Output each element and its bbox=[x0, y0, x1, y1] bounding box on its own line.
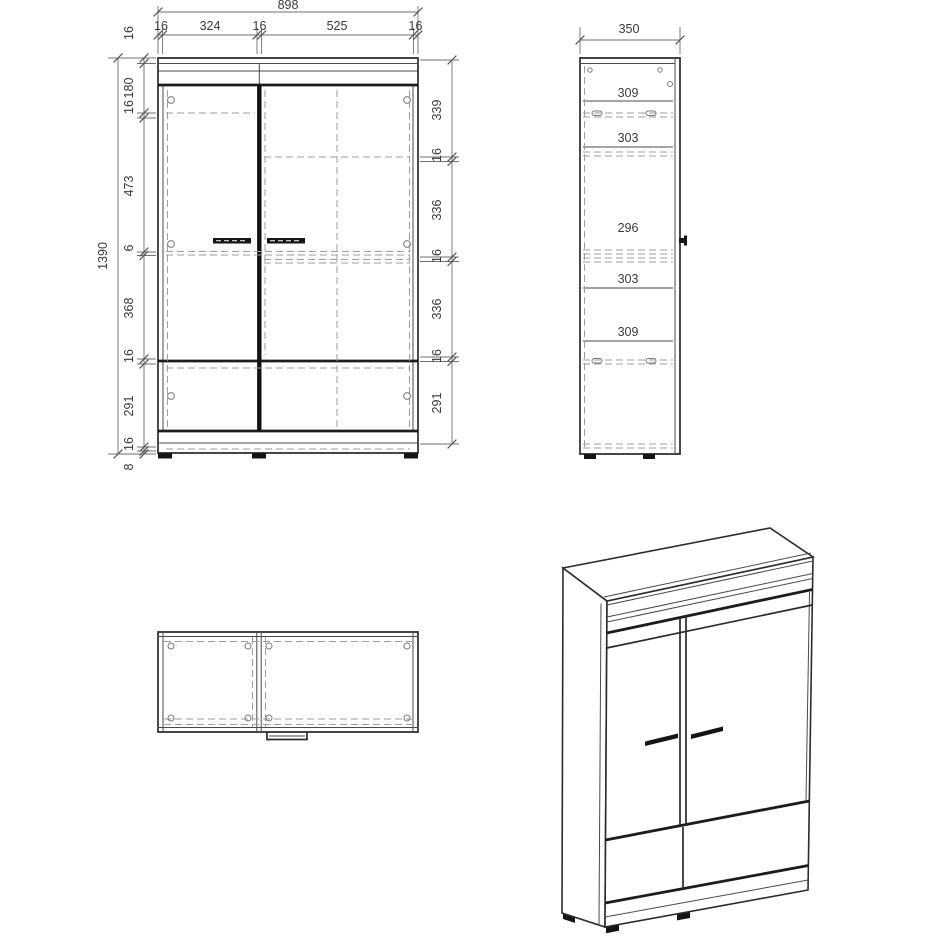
dim-pitch-4: 309 bbox=[618, 325, 639, 339]
technical-drawing: 898 16 324 16 525 16 1390 16 180 16 473 … bbox=[0, 0, 940, 940]
perspective-view bbox=[562, 528, 813, 933]
left-door-handle bbox=[213, 238, 251, 244]
dim-left-seg-7: 291 bbox=[122, 396, 136, 417]
dimension-ticks bbox=[114, 8, 457, 459]
dim-left-seg-3: 473 bbox=[122, 176, 136, 197]
front-fastener-marks bbox=[168, 97, 411, 400]
top-structure-lines bbox=[158, 632, 418, 732]
top-cabinet-outline bbox=[158, 632, 418, 732]
front-hidden-lines bbox=[166, 90, 410, 449]
dim-left-seg-0: 16 bbox=[122, 26, 136, 40]
side-hidden-lines bbox=[583, 66, 673, 448]
dim-left-seg-9: 8 bbox=[122, 463, 136, 470]
top-view bbox=[158, 632, 418, 740]
dim-width-seg-3: 525 bbox=[327, 19, 348, 33]
dim-total-depth: 350 bbox=[619, 22, 640, 36]
dim-left-seg-1: 180 bbox=[122, 78, 136, 99]
dim-left-seg-8: 16 bbox=[122, 437, 136, 451]
dim-width-seg-2: 16 bbox=[253, 19, 267, 33]
dim-left-seg-5: 368 bbox=[122, 298, 136, 319]
dim-pitch-3: 303 bbox=[618, 272, 639, 286]
dim-right-seg-2: 336 bbox=[430, 200, 444, 221]
dim-pitch-1: 303 bbox=[618, 131, 639, 145]
dim-right-seg-6: 291 bbox=[430, 393, 444, 414]
drawing-canvas: 898 16 324 16 525 16 1390 16 180 16 473 … bbox=[0, 0, 940, 940]
side-view: 350 309 303 296 303 309 bbox=[576, 22, 687, 459]
dim-right-seg-0: 339 bbox=[430, 100, 444, 121]
dim-right-seg-3: 16 bbox=[430, 249, 444, 263]
dim-right-seg-5: 16 bbox=[430, 349, 444, 363]
top-hidden-lines bbox=[164, 637, 412, 727]
dim-width-seg-1: 324 bbox=[200, 19, 221, 33]
front-thick-lines bbox=[158, 85, 418, 431]
top-view-handle bbox=[267, 732, 307, 740]
dim-pitch-2: 296 bbox=[618, 221, 639, 235]
dim-left-seg-6: 16 bbox=[122, 349, 136, 363]
dim-width-seg-4: 16 bbox=[409, 19, 423, 33]
dim-pitch-0: 309 bbox=[618, 86, 639, 100]
top-fastener-marks bbox=[168, 643, 410, 721]
dim-left-seg-4: 6 bbox=[122, 244, 136, 251]
dim-total-height: 1390 bbox=[96, 242, 110, 270]
dim-right-seg-4: 336 bbox=[430, 299, 444, 320]
dim-right-seg-1: 16 bbox=[430, 148, 444, 162]
front-structure-lines bbox=[158, 64, 418, 444]
front-view: 898 16 324 16 525 16 1390 16 180 16 473 … bbox=[96, 0, 459, 470]
shelf-pin-marks bbox=[588, 68, 673, 363]
dim-left-seg-2: 16 bbox=[122, 100, 136, 114]
right-door-handle bbox=[267, 238, 305, 244]
dim-width-seg-0: 16 bbox=[154, 19, 168, 33]
dim-total-width: 898 bbox=[278, 0, 299, 12]
